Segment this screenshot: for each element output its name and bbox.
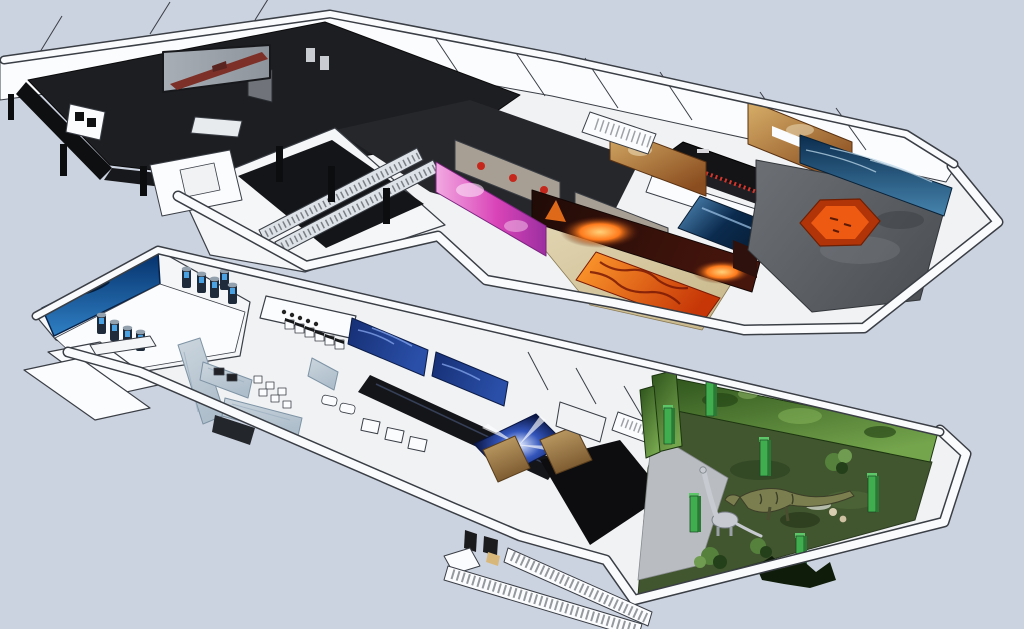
stone-mottle xyxy=(876,211,924,229)
counter-sign xyxy=(697,149,709,153)
pillar xyxy=(140,166,147,196)
mural-foliage xyxy=(778,408,822,424)
pink-swirl xyxy=(456,183,484,197)
eruption-glow xyxy=(560,216,640,248)
rust-blotch xyxy=(786,124,814,136)
floorplan-rendering xyxy=(0,0,1024,629)
pillar xyxy=(60,144,67,176)
info-panel xyxy=(306,48,315,62)
pink-swirl xyxy=(504,220,528,232)
poster-red xyxy=(509,174,517,182)
poster-red xyxy=(477,162,485,170)
display-case xyxy=(191,117,242,137)
pillar xyxy=(8,94,14,120)
mural-foliage xyxy=(864,426,896,438)
pillar xyxy=(383,188,390,224)
pillar xyxy=(276,146,283,182)
info-panel xyxy=(320,56,329,70)
pillar xyxy=(328,166,335,202)
window-box xyxy=(87,118,96,127)
window-box xyxy=(75,112,84,121)
